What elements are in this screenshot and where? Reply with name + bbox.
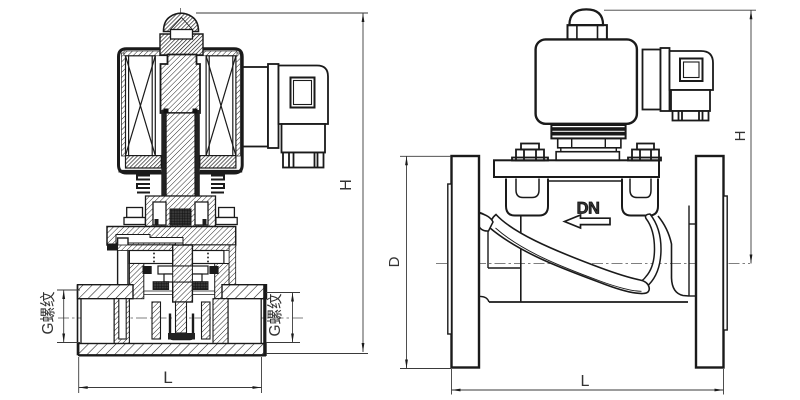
svg-text:DN: DN xyxy=(577,200,600,218)
svg-text:L: L xyxy=(163,368,172,387)
svg-text:H: H xyxy=(338,179,355,191)
svg-text:D: D xyxy=(386,256,403,267)
svg-text:G螺纹: G螺纹 xyxy=(39,291,57,335)
svg-text:H: H xyxy=(732,131,749,142)
svg-text:L: L xyxy=(581,373,590,390)
svg-text:G螺纹: G螺纹 xyxy=(266,293,284,337)
